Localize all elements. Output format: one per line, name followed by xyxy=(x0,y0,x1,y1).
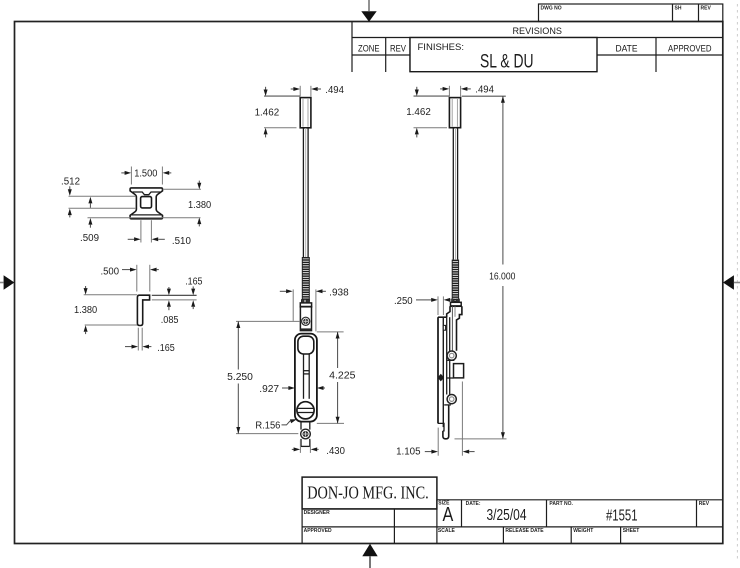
svg-text:.085: .085 xyxy=(161,315,179,326)
svg-text:PART NO.: PART NO. xyxy=(549,501,573,507)
svg-text:1.462: 1.462 xyxy=(406,107,431,118)
svg-text:REV: REV xyxy=(390,43,406,53)
svg-text:5.250: 5.250 xyxy=(227,372,253,383)
svg-text:A: A xyxy=(443,504,454,526)
svg-text:.927: .927 xyxy=(259,384,279,395)
svg-text:DATE:: DATE: xyxy=(466,501,481,507)
svg-text:1.462: 1.462 xyxy=(255,108,280,119)
svg-text:.494: .494 xyxy=(325,85,344,96)
svg-text:SL & DU: SL & DU xyxy=(480,52,534,73)
svg-text:RELEASE DATE: RELEASE DATE xyxy=(505,528,544,534)
svg-text:DON-JO MFG. INC.: DON-JO MFG. INC. xyxy=(307,483,429,503)
svg-text:.165: .165 xyxy=(157,343,175,354)
svg-text:1.380: 1.380 xyxy=(188,200,212,211)
svg-text:#1551: #1551 xyxy=(606,508,638,525)
svg-text:.510: .510 xyxy=(172,236,191,247)
svg-text:REV: REV xyxy=(701,6,712,12)
svg-text:ZONE: ZONE xyxy=(358,43,380,53)
svg-text:R.156: R.156 xyxy=(255,421,280,432)
svg-text:REV: REV xyxy=(699,501,710,507)
svg-text:DESIGNER: DESIGNER xyxy=(304,510,331,516)
svg-text:4.225: 4.225 xyxy=(329,371,356,382)
svg-text:.509: .509 xyxy=(80,233,99,244)
svg-text:SCALE: SCALE xyxy=(438,528,456,534)
svg-text:.430: .430 xyxy=(326,446,345,457)
svg-text:16.000: 16.000 xyxy=(489,271,516,282)
svg-text:DATE: DATE xyxy=(616,43,638,53)
svg-text:3/25/04: 3/25/04 xyxy=(487,507,527,524)
svg-text:DWG NO: DWG NO xyxy=(541,6,562,12)
svg-text:1.500: 1.500 xyxy=(134,169,158,180)
svg-text:.165: .165 xyxy=(185,276,203,287)
svg-text:1.105: 1.105 xyxy=(396,447,421,458)
svg-text:FINISHES:: FINISHES: xyxy=(418,42,465,52)
svg-text:APPROVED: APPROVED xyxy=(668,43,712,53)
svg-text:APPROVED: APPROVED xyxy=(304,528,332,534)
svg-text:1.380: 1.380 xyxy=(74,305,98,316)
svg-text:.494: .494 xyxy=(475,85,494,96)
svg-text:.500: .500 xyxy=(101,266,120,277)
svg-text:.512: .512 xyxy=(61,176,80,187)
svg-text:WEIGHT: WEIGHT xyxy=(573,528,593,534)
svg-text:SH: SH xyxy=(675,6,682,12)
svg-text:REVISIONS: REVISIONS xyxy=(513,26,563,37)
svg-text:.938: .938 xyxy=(329,287,349,298)
svg-text:.250: .250 xyxy=(394,296,413,307)
svg-text:SHEET: SHEET xyxy=(623,528,640,534)
